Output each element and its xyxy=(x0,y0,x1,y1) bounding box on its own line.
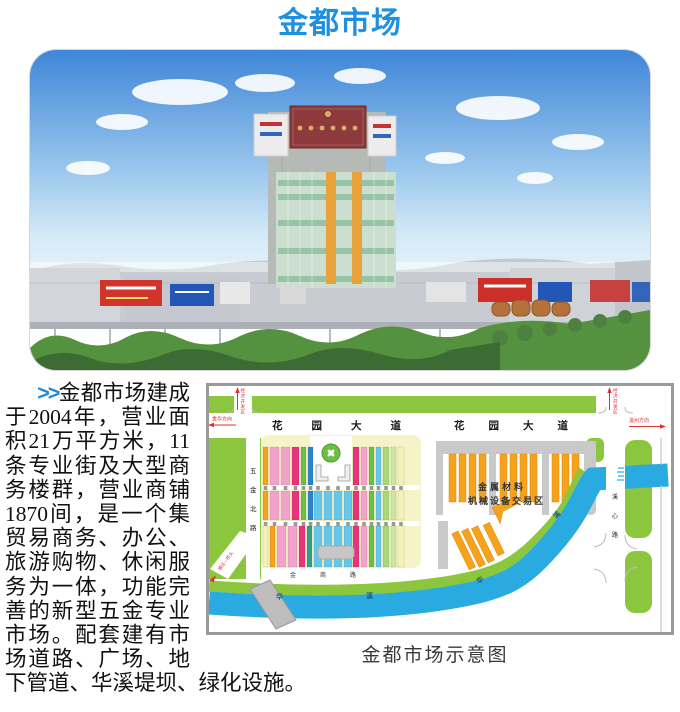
river-char-2: 溪 xyxy=(366,591,374,600)
xixin-road-label: 溪心路 xyxy=(612,493,618,539)
schematic-map-block: 花园大道 花园大道 金商路 五金北路 溪心路 金华方向 温州方向 经济开发区 经… xyxy=(196,383,674,667)
intro-marker: >> xyxy=(37,381,58,405)
metal-zone-label-line1: 金属材料 xyxy=(477,481,526,492)
jinshang-road-label: 金商路 xyxy=(290,571,380,579)
market-photo-svg xyxy=(30,50,650,370)
metal-zone-label-line2: 机械设备交易区 xyxy=(468,495,545,506)
jinhua-direction-label: 金华方向 xyxy=(212,416,232,423)
wenzhou-arrow-icon xyxy=(660,424,666,428)
content-area: 花园大道 花园大道 金商路 五金北路 溪心路 金华方向 温州方向 经济开发区 经… xyxy=(0,370,680,696)
schematic-map: 花园大道 花园大道 金商路 五金北路 溪心路 金华方向 温州方向 经济开发区 经… xyxy=(206,383,674,635)
garden-avenue-west-label: 花园大道 xyxy=(272,419,430,432)
page-title: 金都市场 xyxy=(0,0,680,42)
map-caption: 金都市场示意图 xyxy=(196,640,674,667)
market-photo xyxy=(30,50,650,370)
wenzhou-direction-label: 温州方向 xyxy=(629,417,649,424)
econ-zone-east-label: 经济开发区 xyxy=(613,387,618,415)
garden-avenue-east-label: 花园大道 xyxy=(454,419,592,432)
central-building xyxy=(318,546,354,559)
roundabout xyxy=(322,444,340,462)
photo-glass-building xyxy=(276,172,396,288)
photo-rooftop-sign xyxy=(290,106,366,148)
econ-zone-west-label: 经济开发区 xyxy=(241,387,246,415)
river-char-1: 华 xyxy=(276,592,283,601)
econ-east-arrow-icon xyxy=(607,387,611,393)
